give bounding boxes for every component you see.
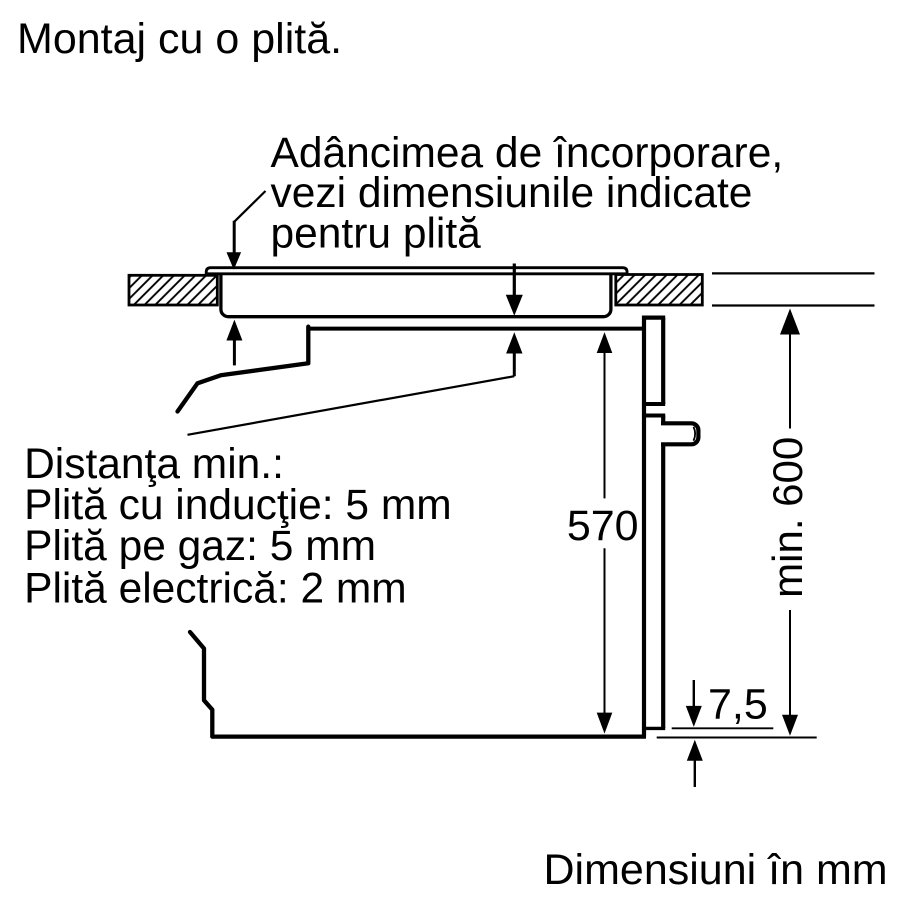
svg-text:pentru plită: pentru plită xyxy=(271,210,482,257)
svg-text:Plită cu inducţie: 5 mm: Plită cu inducţie: 5 mm xyxy=(24,482,452,529)
svg-text:Plită electrică: 2 mm: Plită electrică: 2 mm xyxy=(24,565,407,612)
svg-text:7,5: 7,5 xyxy=(708,680,768,728)
svg-text:Plită pe gaz: 5 mm: Plită pe gaz: 5 mm xyxy=(24,523,376,570)
svg-text:Distanţa min.:: Distanţa min.: xyxy=(24,441,284,488)
svg-text:Montaj cu o plită.: Montaj cu o plită. xyxy=(17,15,342,63)
svg-text:570: 570 xyxy=(567,502,639,550)
svg-text:Dimensiuni în mm: Dimensiuni în mm xyxy=(544,846,888,894)
svg-text:min. 600: min. 600 xyxy=(764,437,811,598)
